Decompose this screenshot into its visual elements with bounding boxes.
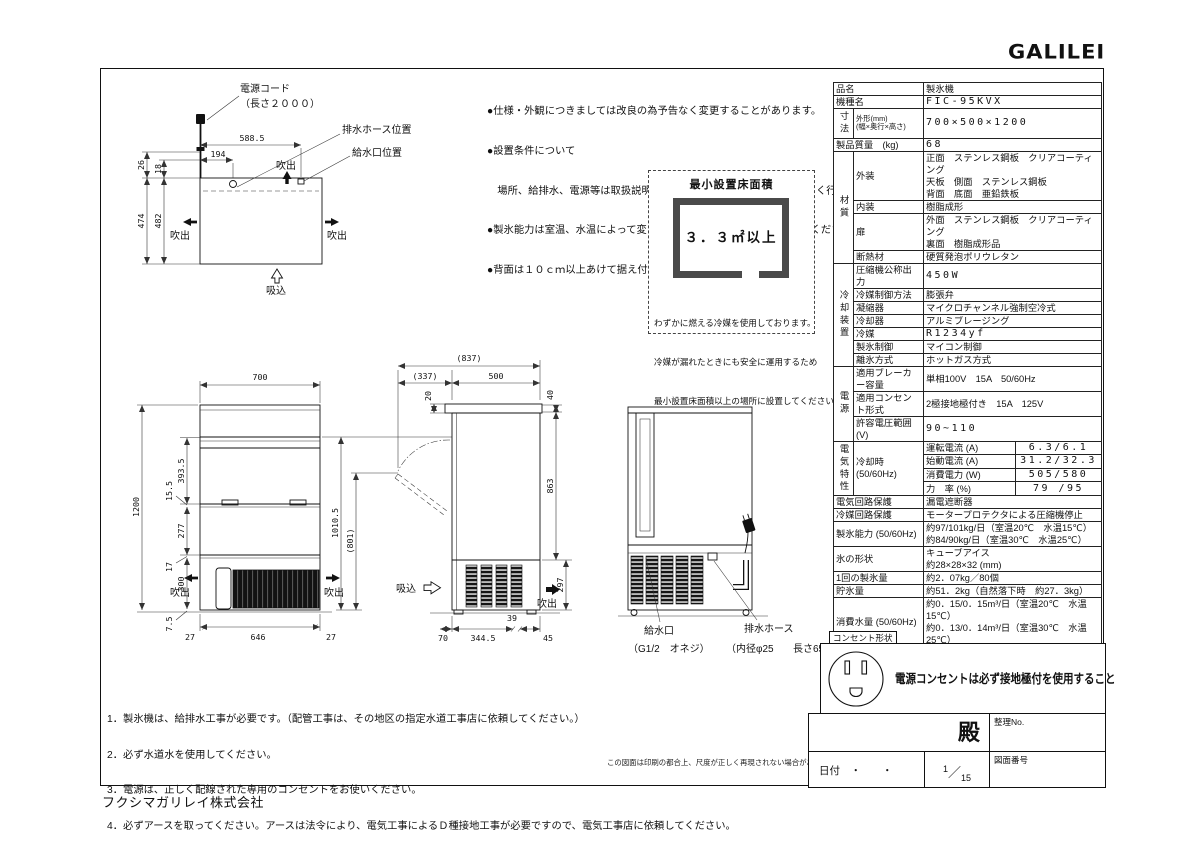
spec-row: 扉外面 ステンレス鋼板 クリアコーティング 裏面 樹脂成形品: [834, 213, 1102, 250]
note-line: 4．必ずアースを取ってください。アースは法令により、電気工事によるＤ種接地工事が…: [107, 821, 765, 833]
spec-cell: 適用ブレーカー容量: [854, 366, 924, 391]
blow-right-arrow-icon: [325, 218, 339, 226]
spec-row: 製氷能力 (50/60Hz)約97/101kg/日（室温20℃ 水温15℃） 約…: [834, 521, 1102, 546]
dim-label: 277: [176, 524, 186, 539]
blow-top-arrow-icon: [283, 171, 292, 184]
spec-cell: モータープロテクタによる圧縮機停止: [924, 508, 1102, 521]
spec-sheet-page: GALILEI ●仕様・外観につきましては改良の為予告なく変更することがあります…: [0, 0, 1200, 848]
dim-label: 70: [438, 633, 448, 643]
spec-cell: 約51．2kg（自然落下時 約27．3kg）: [924, 584, 1102, 597]
spec-cell: 断熱材: [854, 250, 924, 263]
spec-cell: 貯氷量: [834, 584, 924, 597]
refrigerant-notes: わずかに燃える冷媒を使用しております。 冷媒が漏れたときにも安全に運用するため …: [654, 291, 843, 434]
spec-cell: アルミブレージング: [924, 314, 1102, 327]
power-cord-length-label: （長さ２０００）: [240, 98, 320, 110]
spec-cell: 運転電流 (A): [924, 441, 1016, 455]
spec-cell: 約2．07kg／80個: [924, 571, 1102, 584]
spec-row: 冷却器アルミブレージング: [834, 314, 1102, 327]
spec-row: 材質外装正面 ステンレス鋼板 クリアコーティング 天板 側面 ステンレス鋼板 背…: [834, 151, 1102, 200]
dim-label: 27: [326, 632, 336, 642]
spec-cell: 約0．15/0．15m³/日（室温20℃ 水温15℃） 約0．13/0．14m³…: [924, 597, 1102, 646]
dim-label: (837): [457, 353, 482, 363]
spec-row: 許容電圧範囲 (V)90~110: [834, 416, 1102, 441]
outlet-warning-box: 電源コンセントは必ず接地極付を使用すること: [820, 643, 1106, 715]
suction-label: 吸込: [396, 583, 416, 595]
title-block: 殿 整理No. 日付 ・ ・ 1／15 図面番号: [808, 713, 1106, 788]
spec-row: 凝縮器マイクロチャンネル強制空冷式: [834, 301, 1102, 314]
spec-cell: FIC-95KVX: [924, 96, 1102, 109]
spec-cell: 冷却時 (50/60Hz): [854, 441, 924, 495]
spec-cell: 2極接地極付き 15A 125V: [924, 391, 1102, 416]
spec-row: 内装樹脂成形: [834, 200, 1102, 213]
spec-cell: 製氷制御: [854, 340, 924, 353]
customer-suffix: 殿: [809, 714, 989, 751]
suction-label: 吸込: [266, 285, 286, 297]
spec-cell: 79 /95: [1016, 482, 1102, 496]
dim-label: 863: [545, 479, 555, 494]
dim-label: 194: [211, 149, 226, 159]
spec-cell: 材質: [834, 151, 854, 263]
blow-left-arrow-icon: [183, 218, 197, 226]
spec-cell: 扉: [854, 213, 924, 250]
spec-cell: 内装: [854, 200, 924, 213]
spec-cell: 硬質発泡ポリウレタン: [924, 250, 1102, 263]
dim-label: 17: [164, 562, 174, 572]
spec-cell: キューブアイス 約28×28×32 (mm): [924, 546, 1102, 571]
dim-label: 1010.5: [330, 508, 340, 538]
spec-cell: 氷の形状: [834, 546, 924, 571]
spec-row: 品名製氷機: [834, 83, 1102, 96]
spec-cell: 凝縮器: [854, 301, 924, 314]
spec-row: 適用コンセント形式2極接地極付き 15A 125V: [834, 391, 1102, 416]
spec-cell: 膨張弁: [924, 288, 1102, 301]
dim-label: 588.5: [240, 133, 265, 143]
water-inlet-label: 給水口: [644, 624, 674, 637]
dim-label: 15.5: [164, 481, 174, 501]
dim-label: 482: [153, 214, 163, 229]
blow-out-label: 吹出: [276, 159, 296, 172]
dim-label: 39: [507, 613, 517, 623]
spec-cell: 90~110: [924, 416, 1102, 441]
spec-row: 冷却装置圧縮機公称出力450W: [834, 263, 1102, 288]
spec-cell: 505/580: [1016, 468, 1102, 482]
side-view-drawing: (837) (337) 500 20 40 863 297 吸込 吹出: [395, 353, 572, 643]
spec-row: 電気特性冷却時 (50/60Hz)運転電流 (A)6.3/6.1: [834, 441, 1102, 455]
spec-cell: 力 率 (%): [924, 482, 1016, 496]
spec-cell: 冷媒回路保護: [834, 508, 924, 521]
dim-label: 344.5: [471, 633, 496, 643]
company-name: フクシマガリレイ株式会社: [102, 792, 264, 811]
blow-left-arrow-icon: [184, 574, 198, 582]
power-plug-icon: [741, 513, 756, 533]
floor-plan-shape: ３．３㎡以上: [673, 198, 789, 278]
spec-cell: 機種名: [834, 96, 924, 109]
dim-label: 300: [176, 577, 186, 592]
spec-cell: 離氷方式: [854, 353, 924, 366]
spec-cell: 単相100V 15A 50/60Hz: [924, 366, 1102, 391]
spec-cell: 450W: [924, 263, 1102, 288]
dim-label: 26: [136, 160, 146, 170]
spec-cell: 品名: [834, 83, 924, 96]
spec-row: 電源適用ブレーカー容量単相100V 15A 50/60Hz: [834, 366, 1102, 391]
spec-cell: ホットガス方式: [924, 353, 1102, 366]
spec-row: 冷媒R1234yf: [834, 327, 1102, 340]
dim-label: 700: [253, 372, 268, 382]
blow-out-label: 吹出: [537, 597, 557, 610]
spec-cell: マイコン制御: [924, 340, 1102, 353]
min-floor-area-title: 最小設置床面積: [649, 176, 814, 192]
dim-label: 27: [185, 632, 195, 642]
water-inlet-thread-label: （G1/2 オネジ）: [628, 643, 710, 655]
spec-cell: 約97/101kg/日（室温20℃ 水温15℃） 約84/90kg/日（室温30…: [924, 521, 1102, 546]
water-inlet-position-label: 給水口位置: [352, 146, 402, 159]
dim-label: 646: [251, 632, 266, 642]
dim-label: (337): [413, 371, 438, 381]
spec-cell: 消費電力 (W): [924, 468, 1016, 482]
spec-row: 氷の形状キューブアイス 約28×28×32 (mm): [834, 546, 1102, 571]
blow-out-label: 吹出: [327, 229, 347, 242]
note-line: 1．製氷機は、給排水工事が必要です。（配管工事は、その地区の指定水道工事店に依頼…: [107, 714, 765, 726]
spec-cell: 製品質量 (kg): [834, 138, 924, 151]
spec-row: 離氷方式ホットガス方式: [834, 353, 1102, 366]
suction-arrow-icon: [424, 582, 441, 594]
dim-label: 474: [136, 214, 146, 229]
spec-cell: マイクロチャンネル強制空冷式: [924, 301, 1102, 314]
spec-cell: R1234yf: [924, 327, 1102, 340]
spec-cell: 外形(mm) (幅×奥行×高さ): [854, 109, 924, 139]
spec-cell: 許容電圧範囲 (V): [854, 416, 924, 441]
min-area-value: ３．３㎡以上: [680, 205, 782, 271]
spec-cell: 外装: [854, 151, 924, 200]
outlet-icon: [821, 644, 887, 714]
dim-label: 20: [423, 391, 433, 401]
spec-cell: 電源: [834, 366, 854, 441]
spec-cell: 6.3/6.1: [1016, 441, 1102, 455]
spec-cell: 68: [924, 138, 1102, 151]
spec-cell: 冷媒: [854, 327, 924, 340]
spec-row: 断熱材硬質発泡ポリウレタン: [834, 250, 1102, 263]
spec-cell: 製氷機: [924, 83, 1102, 96]
spec-row: 冷媒回路保護モータープロテクタによる圧縮機停止: [834, 508, 1102, 521]
drain-hose-elbow: [733, 560, 746, 587]
spec-cell: 正面 ステンレス鋼板 クリアコーティング 天板 側面 ステンレス鋼板 背面 底面…: [924, 151, 1102, 200]
dim-label: (801): [345, 529, 355, 554]
spec-row: 製氷制御マイコン制御: [834, 340, 1102, 353]
spec-cell: 冷却器: [854, 314, 924, 327]
spec-row: 1回の製氷量約2．07kg／80個: [834, 571, 1102, 584]
blow-out-label: 吹出: [170, 229, 190, 242]
spec-row: 貯氷量約51．2kg（自然落下時 約27．3kg）: [834, 584, 1102, 597]
spec-cell: 31.2/32.3: [1016, 455, 1102, 469]
spec-cell: 樹脂成形: [924, 200, 1102, 213]
spec-cell: 適用コンセント形式: [854, 391, 924, 416]
power-cord-label: 電源コード: [240, 82, 290, 95]
spec-cell: 寸法: [834, 109, 854, 139]
dim-label: 393.5: [176, 459, 186, 484]
dim-label: 40: [545, 390, 555, 400]
spec-row: 冷媒制御方法膨張弁: [834, 288, 1102, 301]
suction-arrow-icon: [272, 269, 283, 283]
spec-cell: 始動電流 (A): [924, 455, 1016, 469]
floor-plan-opening: [742, 271, 759, 279]
spec-cell: 冷媒制御方法: [854, 288, 924, 301]
dim-label: 500: [489, 371, 504, 381]
dim-label: 45: [543, 633, 553, 643]
spec-row: 電気回路保護漏電遮断器: [834, 495, 1102, 508]
top-view-drawing: 電源コード （長さ２０００） 588.5 194 排水ホース位置 給水口位置 2…: [136, 82, 412, 297]
spec-row: 機種名FIC-95KVX: [834, 96, 1102, 109]
reference-no-label: 整理No.: [989, 714, 1105, 751]
spec-cell: 冷却装置: [834, 263, 854, 366]
spec-cell: 圧縮機公称出力: [854, 263, 924, 288]
drain-hose-position-label: 排水ホース位置: [342, 123, 412, 136]
spec-cell: 漏電遮断器: [924, 495, 1102, 508]
blow-right-arrow-icon: [326, 574, 340, 582]
spec-cell: 1回の製氷量: [834, 571, 924, 584]
dim-label: 18: [153, 164, 163, 174]
grounding-warning-text: 電源コンセントは必ず接地極付を使用すること: [895, 644, 1116, 714]
spec-cell: 電気回路保護: [834, 495, 924, 508]
min-floor-area-box: 最小設置床面積 ３．３㎡以上 わずかに燃える冷媒を使用しております。 冷媒が漏れ…: [648, 170, 815, 334]
drain-hose-dia-label: （内径φ25: [726, 642, 774, 655]
spec-cell: 電気特性: [834, 441, 854, 495]
date-cell: 日付 ・ ・: [809, 751, 924, 787]
sheet-number: 1／15: [924, 751, 989, 787]
installation-notes: 1．製氷機は、給排水工事が必要です。（配管工事は、その地区の指定水道工事店に依頼…: [107, 690, 765, 848]
spec-cell: 製氷能力 (50/60Hz): [834, 521, 924, 546]
drawing-no-label: 図面番号: [989, 751, 1105, 787]
drain-hose-label: 排水ホース: [744, 622, 794, 635]
rear-view-drawing: 給水口 （G1/2 オネジ） 排水ホース （内径φ25 長さ650: [618, 407, 830, 655]
front-view-drawing: 吹出 吹出 700 1200 393.5 15.5 277 17 300 7: [131, 372, 452, 642]
dim-label: 1200: [131, 497, 141, 517]
spec-row: 寸法外形(mm) (幅×奥行×高さ)700×500×1200: [834, 109, 1102, 139]
spec-cell: 外面 ステンレス鋼板 クリアコーティング 裏面 樹脂成形品: [924, 213, 1102, 250]
spec-row: 製品質量 (kg)68: [834, 138, 1102, 151]
spec-cell: 700×500×1200: [924, 109, 1102, 139]
dim-label: 7.5: [164, 617, 174, 632]
